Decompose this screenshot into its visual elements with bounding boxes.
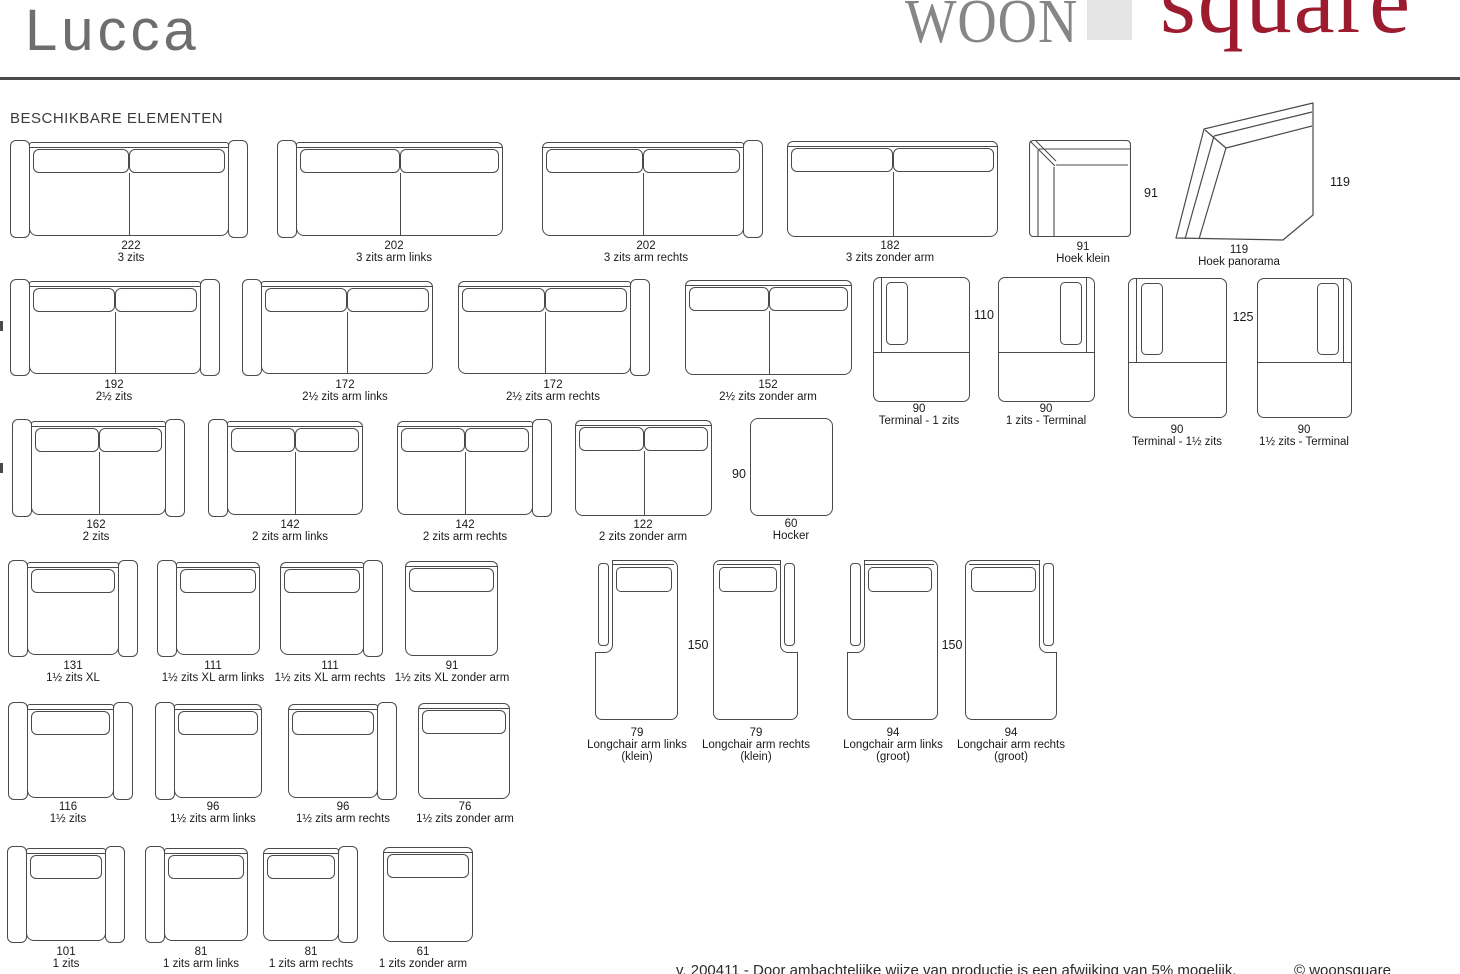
longchair-back-frame-line [717, 564, 780, 565]
sofa-back-cushion [30, 855, 102, 879]
element-name-label: Longchair arm rechts [702, 739, 810, 751]
sofa-back-cushion [347, 288, 429, 312]
element-202-3-zits-arm-rechts [542, 140, 763, 238]
element-96-1-zits-arm-links [155, 702, 262, 800]
element-162-2-zits [12, 419, 185, 517]
element-name-sublabel: (groot) [876, 751, 910, 763]
sofa-back-frame-line [264, 853, 338, 854]
sofa-back-cushion [292, 711, 374, 735]
hocker-body [750, 418, 833, 516]
sofa-back-frame-line [175, 709, 261, 710]
sofa-back-cushion [265, 288, 347, 312]
longchair-back-cushion [971, 567, 1036, 592]
sofa-back-cushion [643, 149, 740, 173]
element-81-1-zits-arm-rechts [263, 846, 358, 943]
element-90-terminal-1-zits [873, 277, 970, 402]
sofa-seat-divider [400, 173, 401, 235]
sofa-back-cushion [99, 428, 163, 452]
sofa-back-frame-line [28, 709, 113, 710]
element-name-label: Longchair arm rechts [957, 739, 1065, 751]
sofa-arm-left [10, 279, 30, 376]
sofa-back-cushion [231, 428, 295, 452]
element-size-label: 76 [459, 801, 472, 813]
element-name-label: 2½ zits arm rechts [506, 391, 600, 403]
sofa-back-cushion [409, 568, 494, 592]
element-size-label: 60 [785, 518, 798, 530]
terminal-arm-cushion [1060, 282, 1082, 345]
sofa-back-cushion [422, 710, 506, 734]
element-size-label: 182 [880, 240, 899, 252]
sofa-back-frame-line [289, 709, 377, 710]
element-name-label: 1½ zits XL arm links [162, 672, 264, 684]
element-size-label: 142 [455, 519, 474, 531]
sofa-back-cushion [267, 855, 335, 879]
sofa-arm-left [8, 702, 28, 800]
terminal-divider [1258, 362, 1351, 363]
element-size-label: 90 [1040, 403, 1053, 415]
element-name-label: 3 zits arm rechts [604, 252, 688, 264]
element-79-longchair-arm-rechts-klein [713, 560, 798, 720]
sofa-back-frame-line [28, 567, 118, 568]
corner-klein-drawing [1029, 140, 1131, 237]
sofa-back-cushion [31, 569, 115, 593]
sofa-arm-left [157, 560, 177, 657]
sofa-back-frame-line [576, 425, 711, 426]
element-152-2-zits-zonder-arm [685, 279, 852, 376]
element-name-label: 2½ zits arm links [302, 391, 388, 403]
sofa-back-cushion [465, 428, 529, 452]
footer-copyright: © woonsquare [1294, 962, 1391, 974]
terminal-divider [999, 352, 1094, 353]
element-size-label: 172 [335, 379, 354, 391]
element-name-label: 1½ zits - Terminal [1259, 436, 1349, 448]
sofa-back-cushion [579, 427, 644, 451]
sofa-seat-divider [769, 311, 770, 374]
sofa-arm-left [7, 846, 27, 943]
sofa-back-frame-line [30, 147, 228, 148]
element-size-label: 101 [56, 946, 75, 958]
sofa-seat-divider [465, 452, 466, 514]
element-size-label: 90 [1298, 424, 1311, 436]
element-size-label: 122 [633, 519, 652, 531]
element-172-2-zits-arm-rechts [458, 279, 650, 376]
longchair-arm-cushion [850, 563, 861, 646]
element-name-label: 1½ zits arm links [170, 813, 256, 825]
element-size-label: 119 [1230, 244, 1248, 256]
sofa-back-cushion [689, 287, 769, 311]
element-size-label: 131 [63, 660, 82, 672]
element-size-label: 96 [207, 801, 220, 813]
element-name-label: 1½ zits [50, 813, 86, 825]
element-79-longchair-arm-links-klein [595, 560, 678, 720]
sofa-back-frame-line [30, 286, 200, 287]
clipped-edge-fragment [0, 463, 3, 473]
sofa-arm-right [113, 702, 133, 800]
element-name-label: 2½ zits zonder arm [719, 391, 817, 403]
sofa-arm-right [228, 140, 248, 238]
sofa-back-cushion [400, 149, 500, 173]
element-size-label: 152 [758, 379, 777, 391]
sofa-arm-right [532, 419, 552, 517]
element-91-1-zits-xl-zonder-arm [405, 560, 498, 657]
product-sheet-page: Lucca WOON square BESCHIKBARE ELEMENTEN … [0, 0, 1460, 974]
sofa-back-cushion [31, 711, 110, 735]
element-94-longchair-arm-rechts-groot [965, 560, 1057, 720]
sofa-back-cushion [284, 569, 360, 593]
element-size-label: 79 [631, 727, 644, 739]
element-172-2-zits-arm-links [242, 279, 433, 376]
dimension-label: 125 [1233, 310, 1254, 324]
element-size-label: 91 [446, 660, 459, 672]
element-name-label: 2½ zits [96, 391, 132, 403]
element-size-label: 94 [887, 727, 900, 739]
sofa-seat-divider [115, 312, 116, 373]
terminal-divider [874, 352, 969, 353]
sofa-back-cushion [33, 149, 129, 173]
corner-panorama-drawing [1172, 98, 1318, 246]
element-90-terminal-1-zits [1128, 278, 1227, 418]
element-116-1-zits [8, 702, 133, 800]
longchair-back-cushion [719, 567, 777, 592]
element-202-3-zits-arm-links [277, 140, 503, 238]
sofa-seat-divider [295, 452, 296, 514]
sofa-back-frame-line [281, 567, 363, 568]
element-name-label: 1 zits [53, 958, 80, 970]
sofa-back-cushion [545, 288, 628, 312]
sofa-back-cushion [168, 855, 244, 879]
sofa-back-cushion [115, 288, 197, 312]
sofa-back-frame-line [543, 147, 743, 148]
terminal-arm-cushion [1317, 283, 1339, 355]
element-76-1-zits-zonder-arm [418, 702, 510, 800]
sofa-arm-right [377, 702, 397, 800]
sofa-seat-divider [347, 312, 348, 373]
longchair-arm-cushion [1043, 563, 1054, 646]
element-182-3-zits-zonder-arm [787, 140, 998, 238]
dimension-label: 91 [1144, 186, 1158, 200]
element-60-hocker [750, 418, 833, 516]
element-name-label: Hocker [773, 530, 809, 542]
sofa-back-cushion [180, 569, 256, 593]
sofa-back-cushion [129, 149, 225, 173]
element-101-1-zits [7, 846, 125, 943]
longchair-back-frame-line [969, 564, 1039, 565]
element-91-hoek-klein [1029, 140, 1131, 237]
sofa-back-frame-line [297, 147, 502, 148]
sofa-back-cushion [644, 427, 709, 451]
sofa-back-frame-line [384, 852, 472, 853]
element-name-label: 1 zits arm links [163, 958, 239, 970]
element-name-label: 2 zits zonder arm [599, 531, 687, 543]
element-size-label: 172 [543, 379, 562, 391]
sofa-arm-right [165, 419, 185, 517]
longchair-back-frame-line [613, 564, 674, 565]
sofa-back-cushion [401, 428, 465, 452]
sofa-back-frame-line [398, 426, 532, 427]
dimension-label: 119 [1330, 175, 1350, 189]
element-name-label: 3 zits [118, 252, 145, 264]
element-name-label: Terminal - 1 zits [879, 415, 960, 427]
terminal-arm-cushion [1141, 283, 1163, 355]
sofa-back-cushion [178, 711, 258, 735]
element-name-label: 1 zits - Terminal [1006, 415, 1086, 427]
element-name-label: 1½ zits zonder arm [416, 813, 514, 825]
terminal-arm-line [1136, 279, 1137, 362]
sofa-back-frame-line [686, 285, 851, 286]
element-192-2-zits [10, 279, 220, 376]
element-name-label: 1½ zits XL [46, 672, 100, 684]
sofa-back-frame-line [27, 853, 105, 854]
sofa-back-cushion [546, 149, 643, 173]
sofa-back-frame-line [165, 853, 247, 854]
footer-version-note: v. 200411 - Door ambachtelijke wijze van… [676, 962, 1237, 974]
sofa-back-cushion [462, 288, 545, 312]
element-size-label: 222 [121, 240, 140, 252]
sofa-arm-left [145, 846, 165, 943]
sofa-back-frame-line [32, 426, 165, 427]
sofa-arm-right [200, 279, 220, 376]
sofa-arm-left [242, 279, 262, 376]
element-61-1-zits-zonder-arm [383, 846, 473, 943]
dimension-label: 90 [732, 467, 746, 481]
element-131-1-zits-xl [8, 560, 138, 657]
clipped-edge-fragment [0, 321, 3, 331]
element-96-1-zits-arm-rechts [288, 702, 397, 800]
sofa-arm-left [12, 419, 32, 517]
sofa-arm-right [118, 560, 138, 657]
element-142-2-zits-arm-links [208, 419, 363, 517]
element-size-label: 96 [337, 801, 350, 813]
sofa-back-frame-line [406, 566, 497, 567]
longchair-back-cushion [868, 567, 932, 592]
sofa-arm-right [743, 140, 763, 238]
dimension-label: 110 [974, 308, 994, 322]
element-name-label: 2 zits [83, 531, 110, 543]
sofa-back-cushion [791, 148, 893, 172]
element-name-label: 1 zits zonder arm [379, 958, 467, 970]
element-name-label: 1½ zits arm rechts [296, 813, 390, 825]
sofa-back-cushion [893, 148, 995, 172]
element-size-label: 142 [280, 519, 299, 531]
element-name-label: Hoek panorama [1198, 256, 1280, 268]
element-name-label: Longchair arm links [843, 739, 943, 751]
sofa-arm-left [155, 702, 175, 800]
terminal-arm-line [1086, 278, 1087, 352]
sofa-back-cushion [769, 287, 849, 311]
element-size-label: 79 [750, 727, 763, 739]
element-name-label: Terminal - 1½ zits [1132, 436, 1222, 448]
element-size-label: 116 [59, 801, 77, 813]
element-81-1-zits-arm-links [145, 846, 248, 943]
terminal-arm-line [881, 278, 882, 352]
element-119-hoek-panorama [1172, 98, 1318, 246]
element-size-label: 81 [305, 946, 318, 958]
sofa-back-cushion [33, 288, 115, 312]
element-size-label: 91 [1077, 241, 1090, 253]
sofa-arm-left [277, 140, 297, 238]
sofa-seat-divider [643, 173, 644, 235]
sofa-seat-divider [644, 451, 645, 515]
element-142-2-zits-arm-rechts [397, 419, 552, 517]
terminal-arm-line [1343, 279, 1344, 362]
sofa-arm-right [630, 279, 650, 376]
sofa-back-frame-line [419, 708, 509, 709]
longchair-arm-cushion [598, 563, 609, 646]
sofa-back-cushion [35, 428, 99, 452]
element-size-label: 90 [913, 403, 926, 415]
longchair-arm-cushion [784, 563, 795, 646]
sofa-back-cushion [300, 149, 400, 173]
element-size-label: 90 [1171, 424, 1184, 436]
element-name-label: 1½ zits XL zonder arm [395, 672, 510, 684]
element-size-label: 111 [321, 660, 338, 672]
sofa-arm-right [338, 846, 358, 943]
sofa-back-frame-line [228, 426, 362, 427]
element-122-2-zits-zonder-arm [575, 419, 712, 517]
available-elements-diagram: 2223 zits2023 zits arm links2023 zits ar… [0, 0, 1460, 974]
sofa-seat-divider [129, 173, 130, 235]
element-name-label: 3 zits arm links [356, 252, 432, 264]
element-size-label: 162 [86, 519, 105, 531]
element-name-label: Hoek klein [1056, 253, 1110, 265]
dimension-label: 150 [942, 638, 963, 652]
terminal-divider [1129, 362, 1226, 363]
element-name-label: Longchair arm links [587, 739, 687, 751]
terminal-arm-cushion [886, 282, 908, 345]
element-name-label: 3 zits zonder arm [846, 252, 934, 264]
element-90-1-zits-terminal [998, 277, 1095, 402]
element-size-label: 81 [195, 946, 208, 958]
sofa-back-frame-line [177, 567, 259, 568]
element-size-label: 192 [104, 379, 123, 391]
element-name-label: 2 zits arm rechts [423, 531, 507, 543]
sofa-back-frame-line [262, 286, 432, 287]
sofa-arm-right [105, 846, 125, 943]
element-111-1-zits-xl-arm-links [157, 560, 260, 657]
sofa-back-frame-line [459, 286, 630, 287]
sofa-seat-divider [545, 312, 546, 373]
element-name-sublabel: (groot) [994, 751, 1028, 763]
element-size-label: 202 [636, 240, 655, 252]
sofa-arm-left [10, 140, 30, 238]
sofa-back-cushion [387, 854, 469, 878]
element-111-1-zits-xl-arm-rechts [280, 560, 383, 657]
sofa-seat-divider [99, 452, 100, 514]
dimension-label: 150 [688, 638, 709, 652]
element-name-label: 2 zits arm links [252, 531, 328, 543]
element-222-3-zits [10, 140, 248, 238]
element-name-label: 1½ zits XL arm rechts [275, 672, 386, 684]
sofa-arm-left [208, 419, 228, 517]
sofa-back-frame-line [788, 146, 997, 147]
sofa-seat-divider [893, 172, 894, 236]
sofa-back-cushion [295, 428, 359, 452]
element-name-label: 1 zits arm rechts [269, 958, 353, 970]
longchair-back-frame-line [865, 564, 934, 565]
element-size-label: 94 [1005, 727, 1018, 739]
element-name-sublabel: (klein) [621, 751, 652, 763]
element-94-longchair-arm-links-groot [847, 560, 938, 720]
element-name-sublabel: (klein) [740, 751, 771, 763]
element-size-label: 111 [204, 660, 221, 672]
sofa-arm-right [363, 560, 383, 657]
element-90-1-zits-terminal [1257, 278, 1352, 418]
element-size-label: 202 [384, 240, 403, 252]
longchair-back-cushion [616, 567, 672, 592]
element-size-label: 61 [417, 946, 430, 958]
sofa-arm-left [8, 560, 28, 657]
